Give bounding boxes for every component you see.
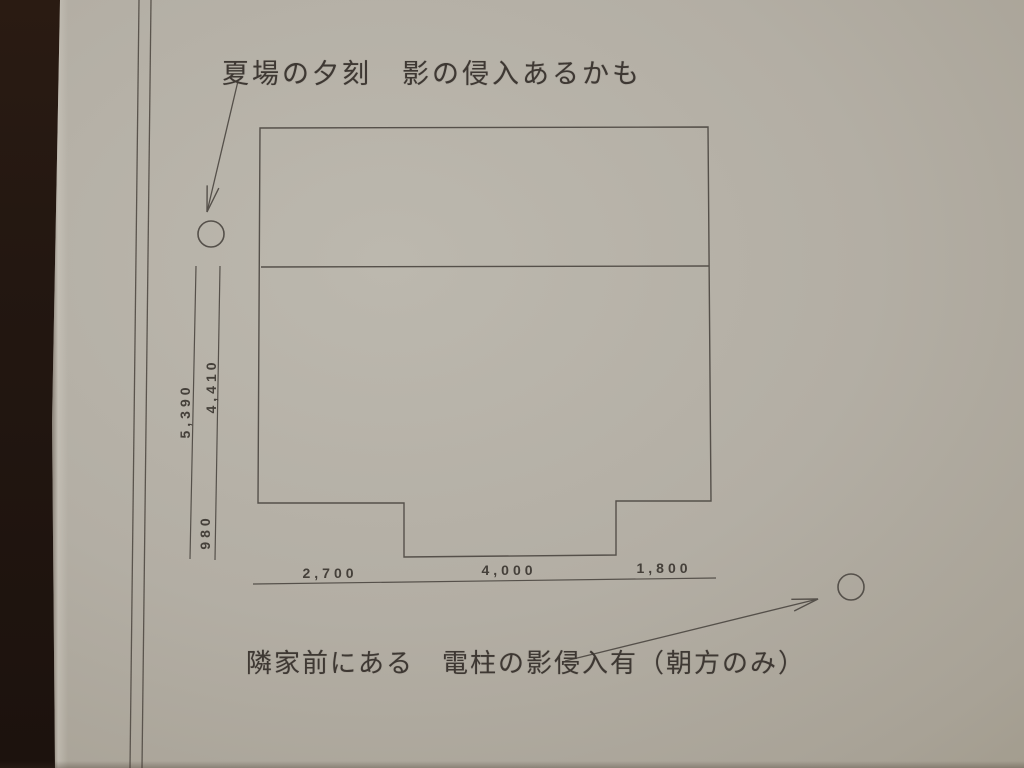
- dim-label-left-lower: 980: [197, 514, 213, 549]
- top-annotation: 夏場の夕刻 影の侵入あるかも: [222, 52, 642, 91]
- building-divider-line: [261, 266, 709, 267]
- site-plan-photo: 夏場の夕刻 影の侵入あるかも 隣家前にある 電柱の影侵入有（朝方のみ） 5,39…: [0, 0, 1024, 768]
- dim-label-bottom-center: 4,000: [481, 562, 536, 578]
- dim-label-left-upper: 4,410: [203, 358, 219, 413]
- paper-bottom-edge-shadow: [0, 761, 1024, 768]
- shadow-source-circle-marker: [198, 221, 224, 247]
- top-note-arrow: [207, 81, 238, 212]
- dim-label-bottom-left: 2,700: [302, 565, 357, 581]
- boundary-line-inner: [142, 0, 151, 768]
- dim-label-left-total: 5,390: [177, 383, 193, 438]
- dim-label-bottom-right: 1,800: [636, 560, 691, 576]
- utility-pole-circle-marker: [838, 574, 864, 600]
- building-outline: [258, 127, 711, 557]
- bottom-annotation: 隣家前にある 電柱の影侵入有（朝方のみ）: [246, 643, 806, 680]
- boundary-line-outer: [130, 0, 139, 768]
